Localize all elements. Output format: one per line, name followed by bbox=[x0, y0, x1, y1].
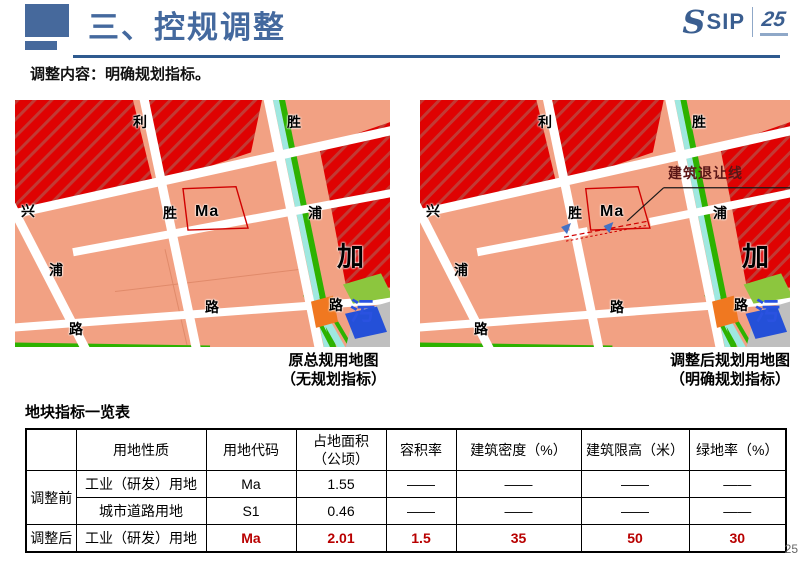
header-divider bbox=[73, 55, 780, 58]
column-header: 容积率 bbox=[386, 429, 456, 471]
adjustment-content-text: 调整内容：明确规划指标。 bbox=[30, 63, 210, 84]
map-label: 利 bbox=[133, 115, 147, 129]
table-cell: —— bbox=[456, 471, 581, 498]
table-cell: 35 bbox=[456, 525, 581, 553]
map-label: 利 bbox=[538, 115, 552, 129]
table-cell: 50 bbox=[581, 525, 689, 553]
table-cell: —— bbox=[386, 498, 456, 525]
column-header: 建筑限高（米） bbox=[581, 429, 689, 471]
map-label: 路 bbox=[474, 322, 488, 336]
indicators-table: 用地性质用地代码占地面积 （公顷）容积率建筑密度（%）建筑限高（米）绿地率（%）… bbox=[25, 428, 787, 553]
table-title: 地块指标一览表 bbox=[25, 401, 130, 422]
title-square-decor bbox=[25, 4, 69, 37]
slide: { "header": { "title": "三、控规调整" }, "logo… bbox=[0, 0, 800, 565]
map-label: 路 bbox=[205, 300, 219, 314]
logo-divider bbox=[752, 7, 753, 37]
table-cell: S1 bbox=[206, 498, 296, 525]
caption-before-line2: （无规划指标） bbox=[281, 370, 386, 389]
map-label: 胜 bbox=[163, 206, 177, 220]
table-cell: 城市道路用地 bbox=[76, 498, 206, 525]
table-row: 调整后工业（研发）用地Ma2.011.5355030 bbox=[26, 525, 786, 553]
table-cell: —— bbox=[386, 471, 456, 498]
table-cell: 1.5 bbox=[386, 525, 456, 553]
column-header: 用地性质 bbox=[76, 429, 206, 471]
table-cell: —— bbox=[456, 498, 581, 525]
page-number: 25 bbox=[785, 542, 798, 556]
map-label: 加 bbox=[337, 244, 364, 271]
map-label: 胜 bbox=[287, 115, 301, 129]
map-label: 路 bbox=[734, 298, 748, 312]
column-header: 绿地率（%） bbox=[689, 429, 786, 471]
map-label: 胜 bbox=[692, 115, 706, 129]
map-label: 加 bbox=[742, 244, 769, 271]
table-cell: 30 bbox=[689, 525, 786, 553]
caption-before-line1: 原总规用地图 bbox=[281, 351, 386, 370]
sip-s-icon: S bbox=[682, 6, 705, 38]
anniversary-number: 25 bbox=[761, 9, 787, 30]
table-row: 城市道路用地S10.46———————— bbox=[26, 498, 786, 525]
table-cell: 1.55 bbox=[296, 471, 386, 498]
column-header bbox=[26, 429, 76, 471]
map-label: 浦 bbox=[308, 206, 322, 220]
caption-after-line1: 调整后规划用地图 bbox=[670, 351, 790, 370]
table-cell: 工业（研发）用地 bbox=[76, 471, 206, 498]
caption-after-line2: （明确规划指标） bbox=[670, 370, 790, 389]
map-label: 污 bbox=[755, 300, 780, 325]
column-header: 建筑密度（%） bbox=[456, 429, 581, 471]
map-label: 路 bbox=[329, 298, 343, 312]
table-cell: 工业（研发）用地 bbox=[76, 525, 206, 553]
map-label: 建筑退让线 bbox=[668, 166, 743, 180]
table-cell: Ma bbox=[206, 471, 296, 498]
table-cell: —— bbox=[689, 471, 786, 498]
table-cell: —— bbox=[689, 498, 786, 525]
sip-logo: S SIP 25 bbox=[682, 6, 788, 38]
map-label: 路 bbox=[69, 322, 83, 336]
map-before-labels: 利胜兴胜Ma浦浦路路路加污 bbox=[15, 100, 390, 347]
title-bar-decor bbox=[25, 41, 57, 50]
anniversary-underbar bbox=[760, 33, 788, 36]
table-cell: —— bbox=[581, 498, 689, 525]
map-after-labels: 利胜兴胜Ma浦浦路路路加污建筑退让线 bbox=[420, 100, 790, 347]
anniversary-mark: 25 bbox=[760, 9, 788, 36]
map-label: 污 bbox=[350, 300, 375, 325]
table-cell: Ma bbox=[206, 525, 296, 553]
land-use-map-after: 利胜兴胜Ma浦浦路路路加污建筑退让线 bbox=[420, 100, 790, 347]
table-cell: 0.46 bbox=[296, 498, 386, 525]
map-label: 浦 bbox=[454, 263, 468, 277]
caption-after: 调整后规划用地图 （明确规划指标） bbox=[420, 351, 790, 389]
table-row: 调整前工业（研发）用地Ma1.55———————— bbox=[26, 471, 786, 498]
table-cell: —— bbox=[581, 471, 689, 498]
map-label: 兴 bbox=[21, 204, 35, 218]
map-label: 胜 bbox=[568, 206, 582, 220]
column-header: 用地代码 bbox=[206, 429, 296, 471]
map-label: Ma bbox=[600, 204, 624, 220]
map-label: 兴 bbox=[426, 204, 440, 218]
map-label: Ma bbox=[195, 204, 219, 220]
land-use-map-before: 利胜兴胜Ma浦浦路路路加污 bbox=[15, 100, 390, 347]
map-label: 浦 bbox=[713, 206, 727, 220]
map-label: 浦 bbox=[49, 263, 63, 277]
map-label: 路 bbox=[610, 300, 624, 314]
table-cell: 2.01 bbox=[296, 525, 386, 553]
page-title: 三、控规调整 bbox=[88, 6, 286, 49]
row-group-label: 调整后 bbox=[26, 525, 76, 553]
column-header: 占地面积 （公顷） bbox=[296, 429, 386, 471]
table-body: 调整前工业（研发）用地Ma1.55————————城市道路用地S10.46———… bbox=[26, 471, 786, 553]
sip-logo-text: SIP bbox=[707, 11, 745, 33]
caption-before: 原总规用地图 （无规划指标） bbox=[15, 351, 386, 389]
row-group-label: 调整前 bbox=[26, 471, 76, 525]
table-head: 用地性质用地代码占地面积 （公顷）容积率建筑密度（%）建筑限高（米）绿地率（%） bbox=[26, 429, 786, 471]
